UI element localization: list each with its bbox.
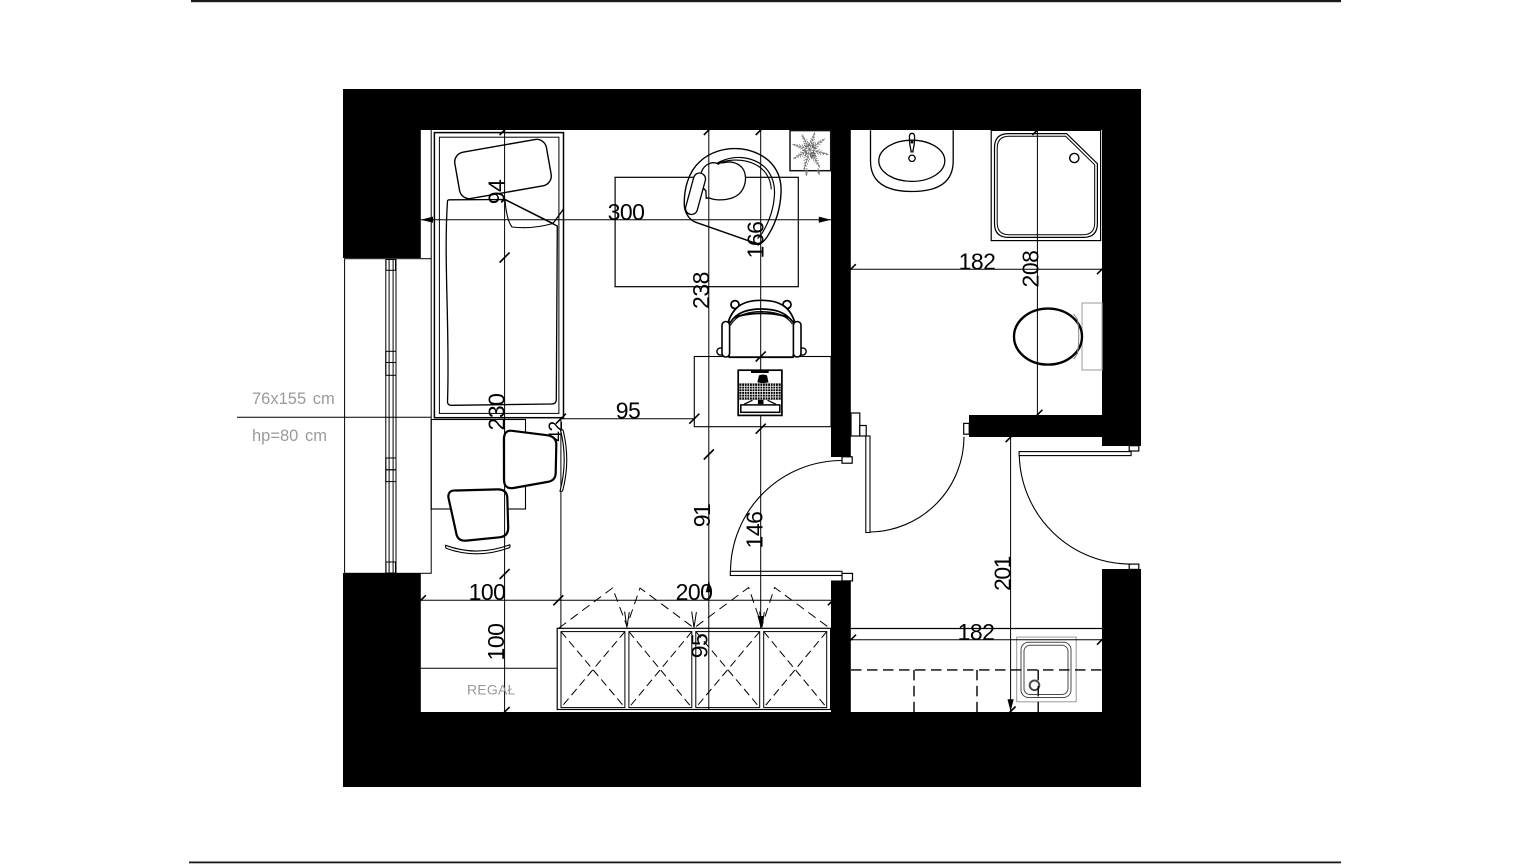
- svg-text:100: 100: [469, 579, 506, 605]
- svg-text:95: 95: [686, 634, 712, 659]
- svg-text:95: 95: [616, 397, 641, 423]
- svg-text:182: 182: [958, 619, 995, 645]
- svg-text:hp=80 cm: hp=80 cm: [252, 427, 327, 445]
- svg-text:166: 166: [743, 222, 769, 259]
- svg-text:300: 300: [608, 199, 645, 225]
- svg-text:146: 146: [742, 512, 768, 549]
- svg-text:200: 200: [676, 579, 713, 605]
- svg-text:230: 230: [484, 394, 510, 431]
- svg-text:REGAŁ: REGAŁ: [467, 681, 515, 697]
- svg-text:91: 91: [689, 504, 715, 527]
- svg-text:182: 182: [959, 248, 996, 274]
- svg-text:76x155 cm: 76x155 cm: [252, 390, 335, 408]
- svg-text:201: 201: [990, 556, 1016, 591]
- svg-text:94: 94: [484, 179, 510, 204]
- svg-text:100: 100: [483, 624, 509, 661]
- svg-text:208: 208: [1018, 251, 1044, 288]
- svg-text:42: 42: [546, 421, 567, 441]
- svg-text:238: 238: [688, 272, 714, 309]
